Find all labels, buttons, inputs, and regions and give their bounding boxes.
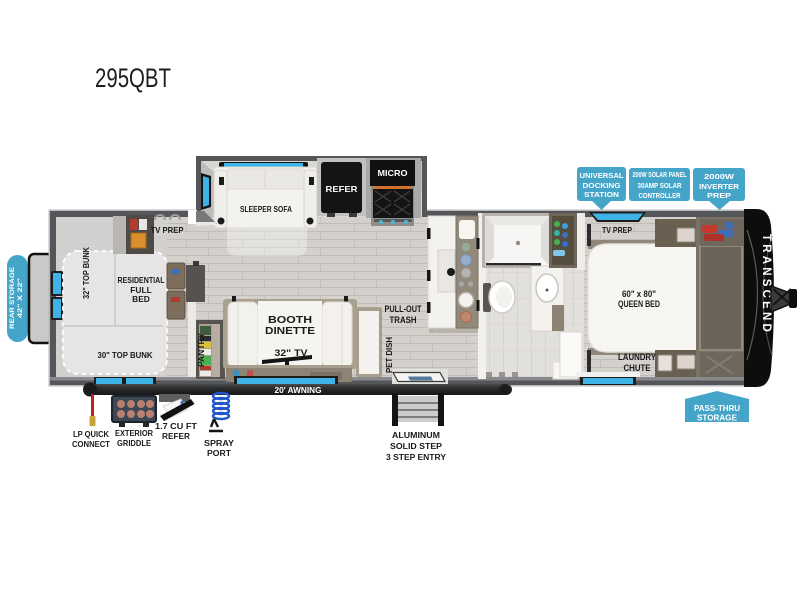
svg-text:PREP: PREP [707,191,731,200]
svg-text:200W SOLAR PANEL: 200W SOLAR PANEL [633,172,687,179]
svg-text:STORAGE: STORAGE [697,413,737,423]
svg-text:QUEEN BED: QUEEN BED [618,299,660,309]
svg-text:PASS-THRU: PASS-THRU [694,403,740,413]
svg-text:RESIDENTIAL: RESIDENTIAL [118,275,165,285]
svg-text:PULL-OUT: PULL-OUT [385,304,423,314]
svg-text:DOCKING: DOCKING [583,181,621,190]
svg-text:3 STEP ENTRY: 3 STEP ENTRY [386,452,446,462]
svg-text:LP QUICK: LP QUICK [73,429,110,439]
svg-text:DINETTE: DINETTE [265,326,315,337]
svg-text:42" X 22": 42" X 22" [17,278,24,318]
svg-text:INVERTER: INVERTER [699,182,740,191]
svg-text:2000W: 2000W [704,172,735,181]
svg-text:20' AWNING: 20' AWNING [275,386,322,395]
svg-text:ALUMINUM: ALUMINUM [392,430,440,440]
svg-text:BOOTH: BOOTH [268,315,312,326]
svg-text:30" TOP BUNK: 30" TOP BUNK [98,350,154,360]
svg-text:PORT: PORT [207,448,232,458]
svg-text:60" x 80": 60" x 80" [622,289,656,299]
svg-text:CONNECT: CONNECT [72,439,111,449]
svg-text:SLEEPER SOFA: SLEEPER SOFA [240,204,292,214]
svg-text:STATION: STATION [584,190,619,199]
svg-text:PANTRY: PANTRY [197,332,206,367]
svg-text:30AMP SOLAR: 30AMP SOLAR [638,183,682,190]
svg-text:TRASH: TRASH [390,315,417,325]
svg-text:PET DISH: PET DISH [384,337,394,373]
svg-text:BED: BED [132,294,150,304]
svg-text:MICRO: MICRO [378,168,409,178]
svg-text:REFER: REFER [326,184,359,194]
svg-text:LAUNDRY: LAUNDRY [618,352,656,362]
svg-text:TRANSCEND: TRANSCEND [760,234,772,335]
svg-text:EXTERIOR: EXTERIOR [115,428,154,438]
svg-text:1.7 CU FT: 1.7 CU FT [155,421,198,431]
svg-text:32" TOP BUNK: 32" TOP BUNK [81,247,91,299]
svg-text:CONTROLLER: CONTROLLER [639,193,681,200]
svg-text:TV PREP: TV PREP [602,225,632,235]
svg-text:REFER: REFER [162,431,191,441]
svg-text:295QBT: 295QBT [95,63,171,93]
svg-text:CHUTE: CHUTE [624,363,651,373]
svg-text:REAR STORAGE: REAR STORAGE [9,266,16,329]
svg-text:TV PREP: TV PREP [151,225,184,235]
svg-text:SPRAY: SPRAY [204,438,234,448]
svg-text:GRIDDLE: GRIDDLE [117,438,151,448]
svg-text:UNIVERSAL: UNIVERSAL [580,171,624,180]
svg-text:SOLID STEP: SOLID STEP [390,441,442,451]
